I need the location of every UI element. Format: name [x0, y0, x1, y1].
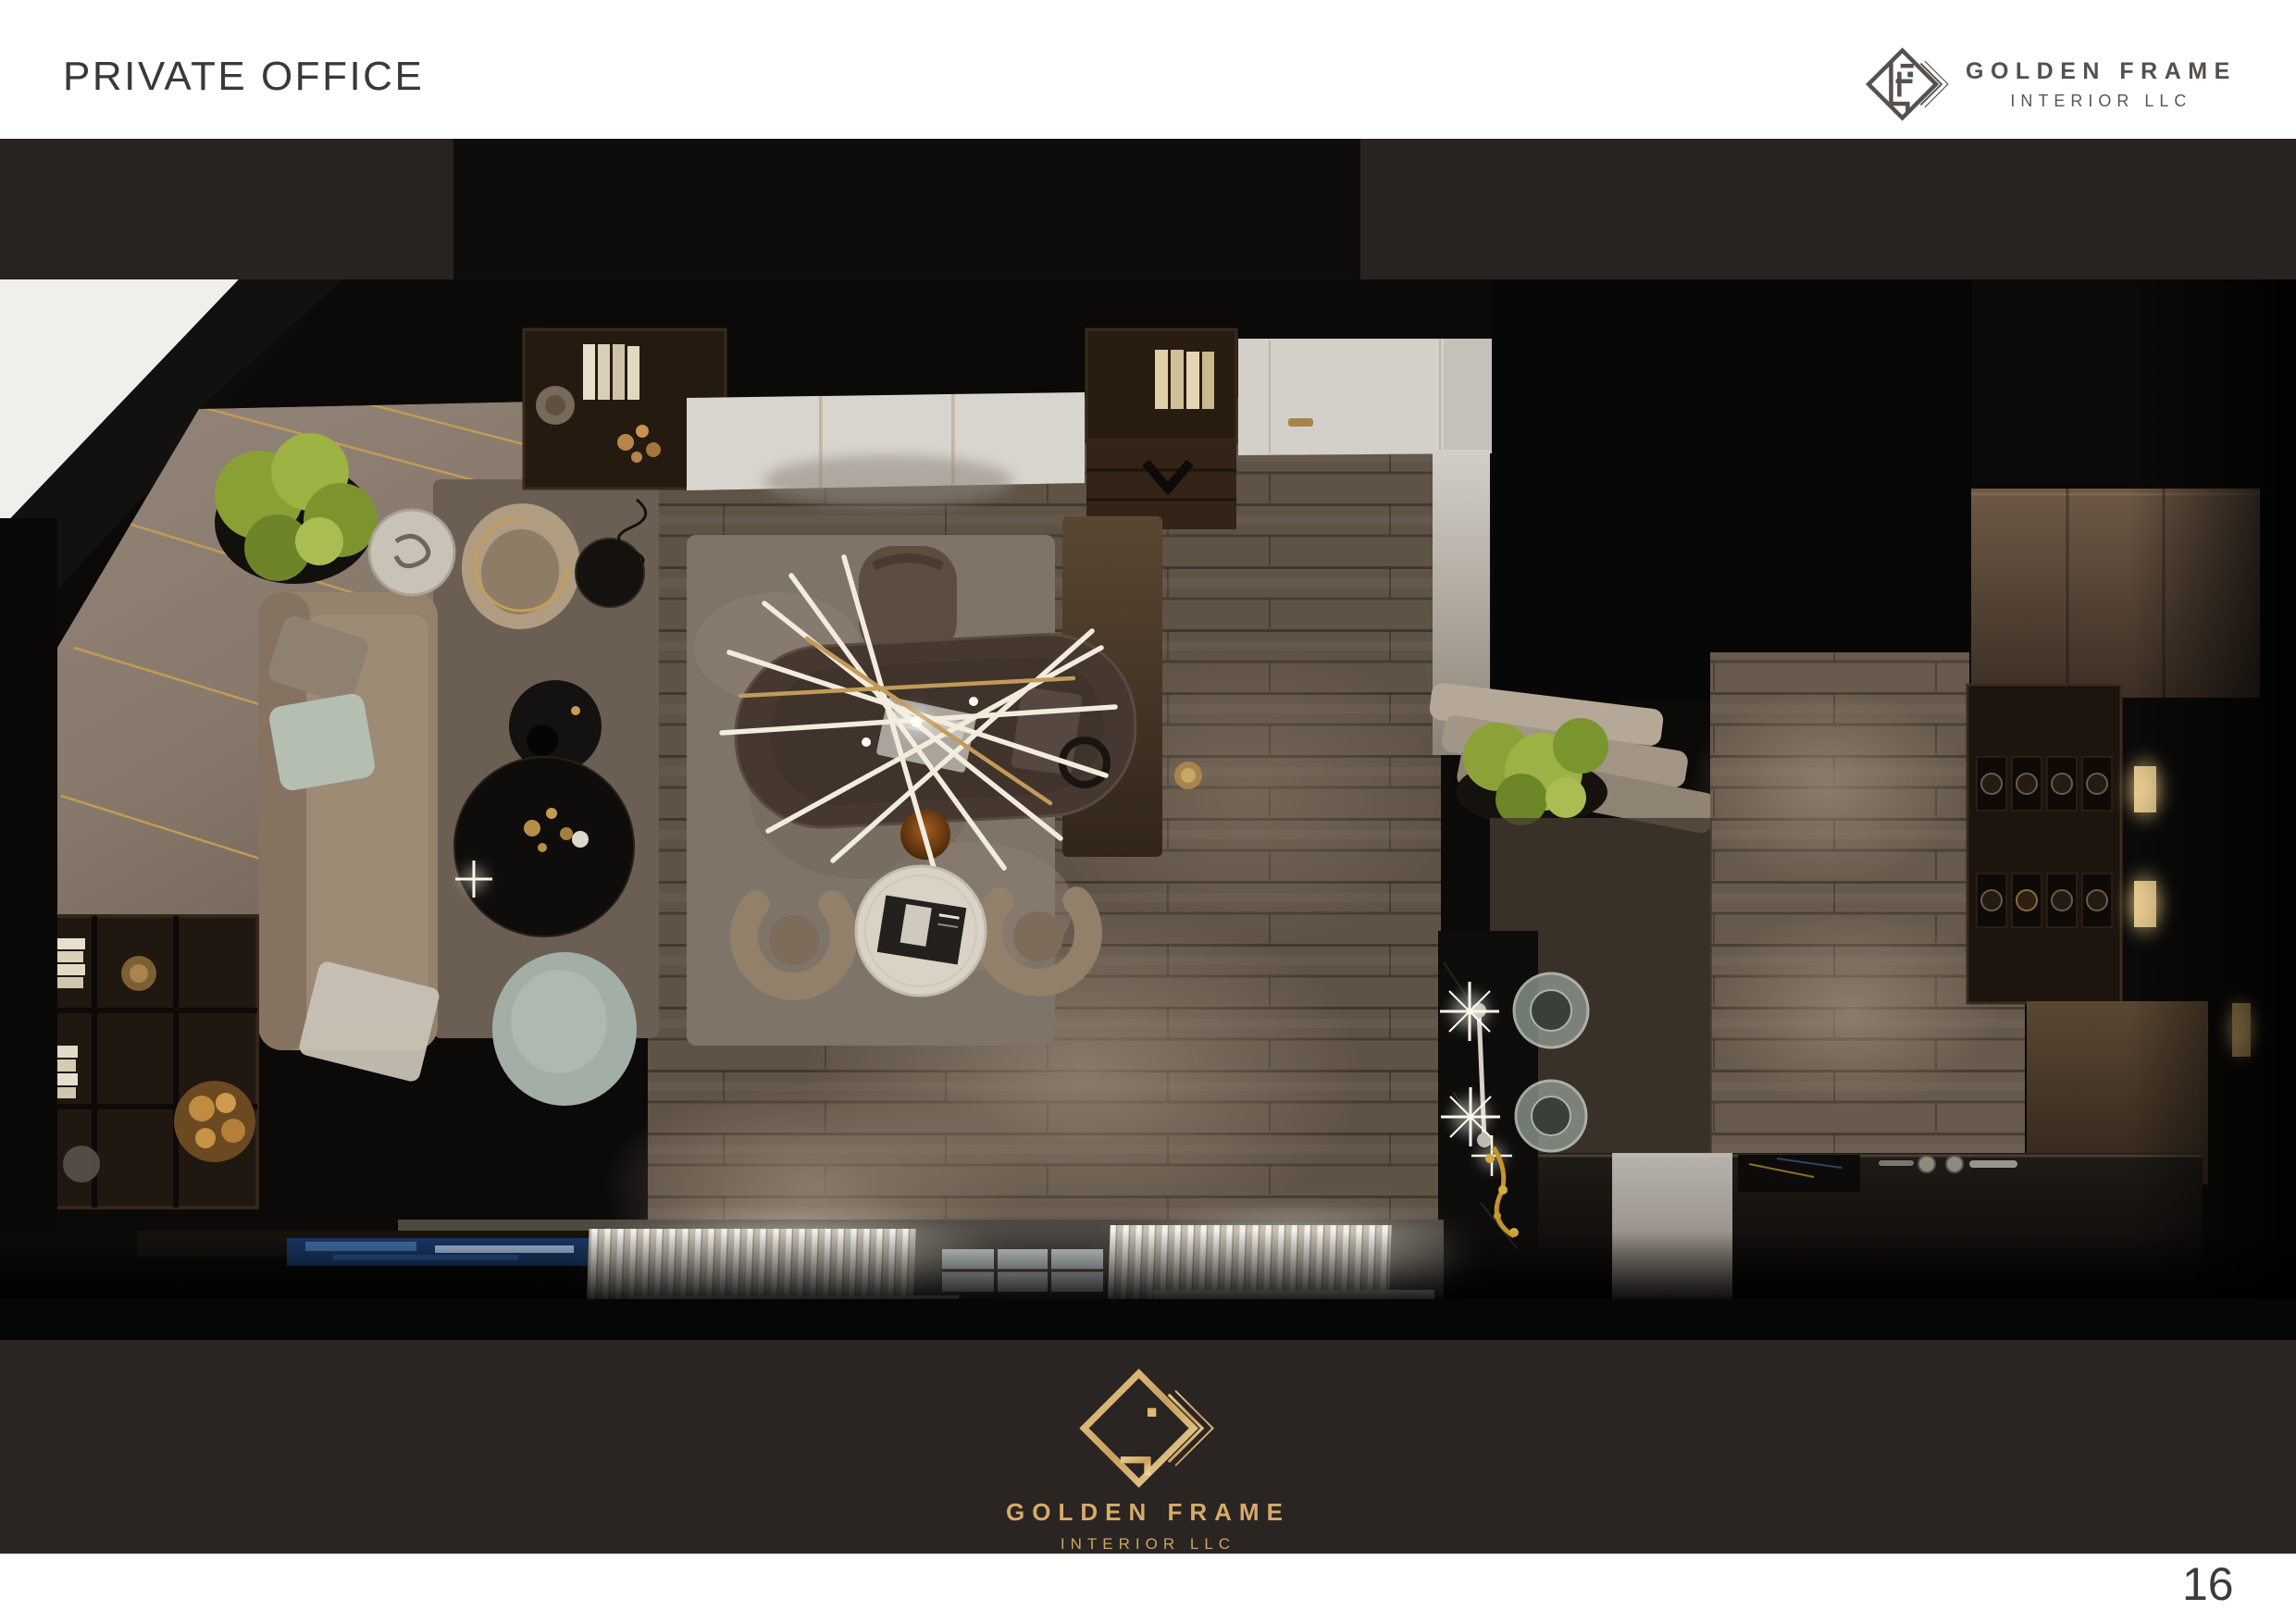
- brand-name: GOLDEN FRAME: [1966, 58, 2237, 85]
- top-bookshelf-right: [1086, 329, 1236, 529]
- sage-pouf: [492, 952, 637, 1106]
- black-coffee-table: [454, 757, 634, 936]
- black-side-table: [576, 539, 644, 607]
- brand-logo-header: GOLDEN FRAME INTERIOR LLC: [1864, 44, 2237, 124]
- page-header: PRIVATE OFFICE: [0, 0, 2296, 139]
- glass-basin: [1514, 973, 1588, 1047]
- gold-door-handle: [1288, 418, 1313, 427]
- entry-door-wall: [1238, 339, 1492, 455]
- sofa: [258, 592, 441, 1084]
- brand-name: GOLDEN FRAME: [1006, 1498, 1290, 1527]
- sofa-pillow-mint: [267, 692, 377, 793]
- brand-wordmark: GOLDEN FRAME INTERIOR LLC: [1966, 58, 2237, 111]
- lounge-area: [215, 433, 659, 1106]
- dark-room-opening: [1492, 279, 1714, 701]
- marble-side-table: [369, 510, 454, 595]
- amber-flower-vase: [174, 1081, 255, 1162]
- page-number: 16: [2182, 1557, 2234, 1611]
- brand-logo-footer: GOLDEN FRAME INTERIOR LLC: [0, 1340, 2296, 1554]
- white-round-table: [856, 866, 986, 996]
- black-marble-counter: [1738, 1155, 1860, 1192]
- brand-subtitle: INTERIOR LLC: [1061, 1535, 1235, 1554]
- golden-frame-diamond-monogram-icon: [1864, 44, 1953, 124]
- page-title: PRIVATE OFFICE: [63, 54, 424, 100]
- render-bottom-edge: [0, 1299, 2296, 1340]
- glass-basin: [1516, 1081, 1586, 1151]
- glass-jar: [63, 1146, 100, 1183]
- brand-subtitle: INTERIOR LLC: [2010, 92, 2191, 111]
- white-flower: [572, 831, 589, 848]
- golden-frame-diamond-monogram-icon: [1067, 1366, 1230, 1491]
- office-topdown-render: [0, 139, 2296, 1340]
- portfolio-page: PRIVATE OFFICE: [0, 0, 2296, 1623]
- page-footer: 16: [0, 1554, 2296, 1623]
